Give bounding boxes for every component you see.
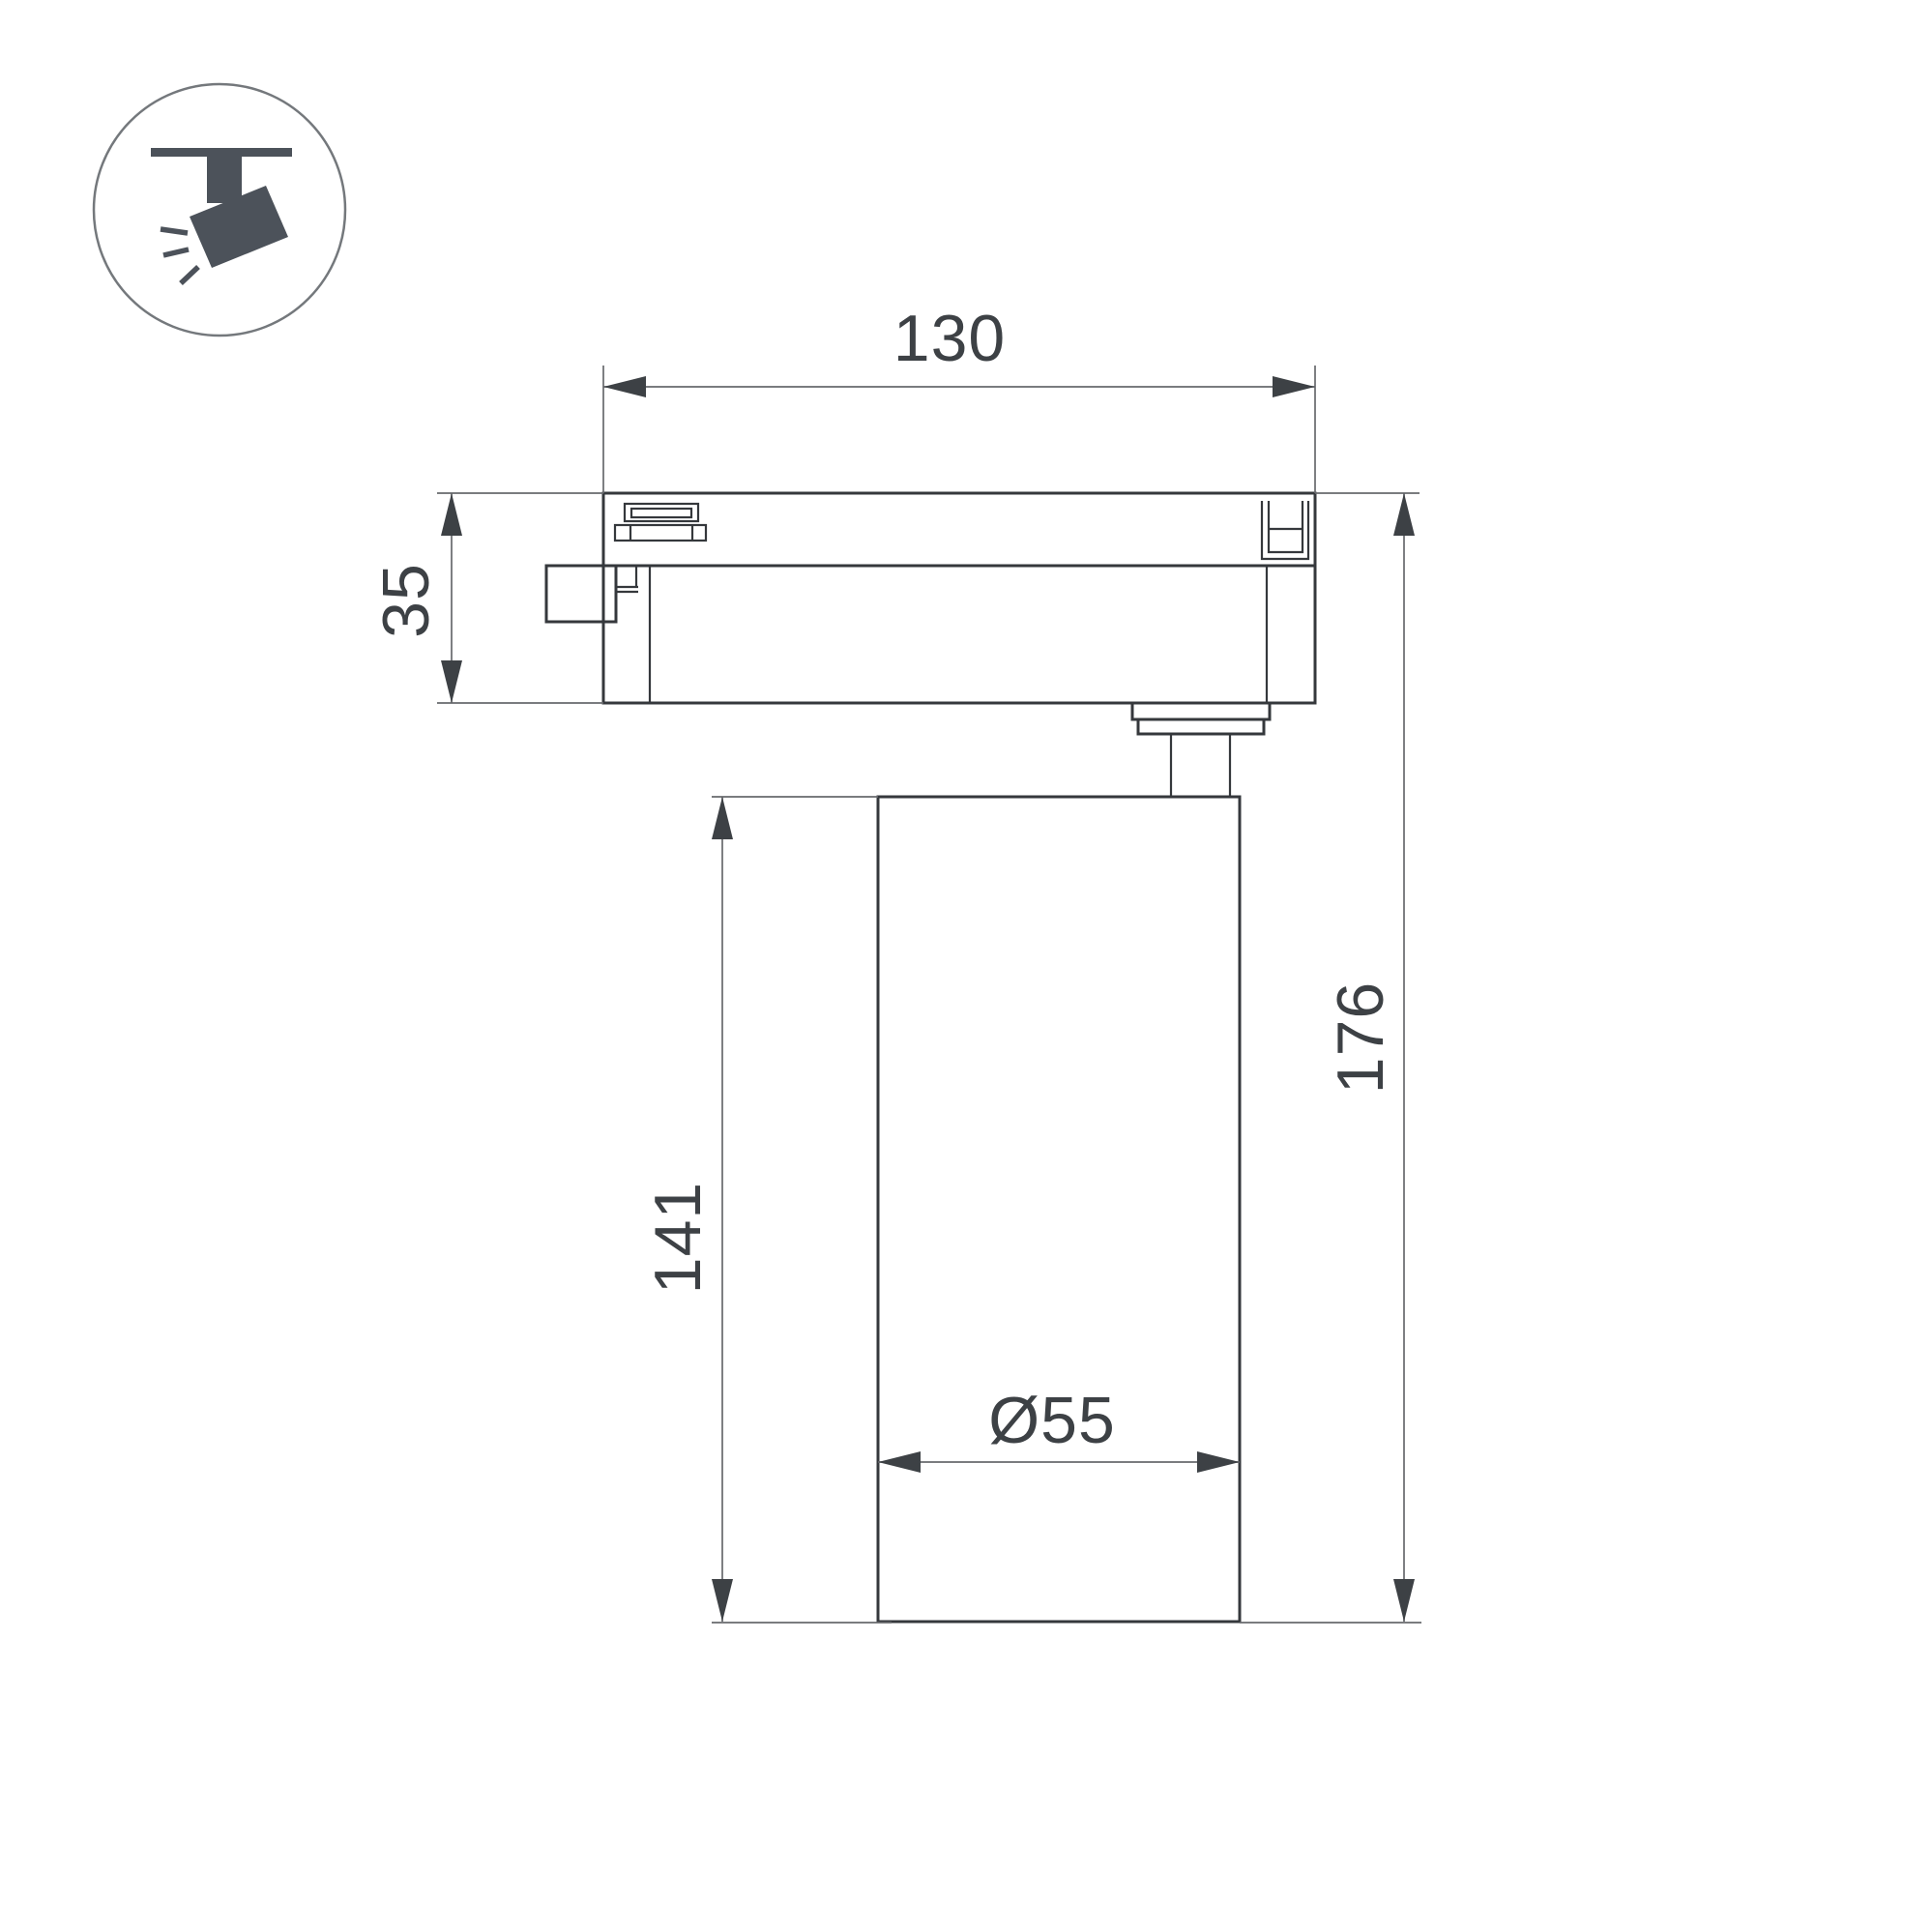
- dimension-body-height: 141: [641, 797, 892, 1623]
- track-spotlight-icon: [94, 84, 345, 336]
- arrowhead-down: [441, 660, 462, 703]
- arrowhead-up: [1393, 493, 1415, 536]
- swivel-neck: [1132, 703, 1270, 797]
- track-adapter-housing: [603, 566, 1315, 703]
- icon-track-stem: [207, 157, 242, 203]
- icon-spotlight-head: [190, 186, 288, 268]
- arrowhead-right: [1273, 376, 1315, 397]
- dimension-label-body-height: 141: [641, 1182, 715, 1294]
- dimension-label-adapter-height: 35: [369, 563, 443, 638]
- dimension-adapter-height: 35: [369, 493, 603, 703]
- arrowhead-left: [603, 376, 646, 397]
- neck-flange-lower: [1138, 719, 1264, 734]
- technical-drawing: 130 35 141 176: [0, 0, 1932, 1932]
- drawing-canvas: 130 35 141 176: [0, 0, 1932, 1932]
- arrowhead-up: [712, 797, 733, 839]
- icon-light-rays: [161, 229, 198, 283]
- dimension-label-body-diameter: Ø55: [988, 1384, 1116, 1457]
- dimension-label-total-height: 176: [1324, 981, 1397, 1094]
- dimension-adapter-width: 130: [603, 302, 1315, 493]
- track-adapter-upper: [603, 493, 1315, 566]
- arrowhead-down: [1393, 1579, 1415, 1622]
- icon-track-bar: [151, 148, 292, 157]
- lamp-cylinder: [878, 797, 1240, 1622]
- arrowhead-up: [441, 493, 462, 536]
- arrowhead-down: [712, 1579, 733, 1622]
- neck-flange-upper: [1132, 703, 1270, 719]
- dimension-label-adapter-width: 130: [893, 302, 1006, 375]
